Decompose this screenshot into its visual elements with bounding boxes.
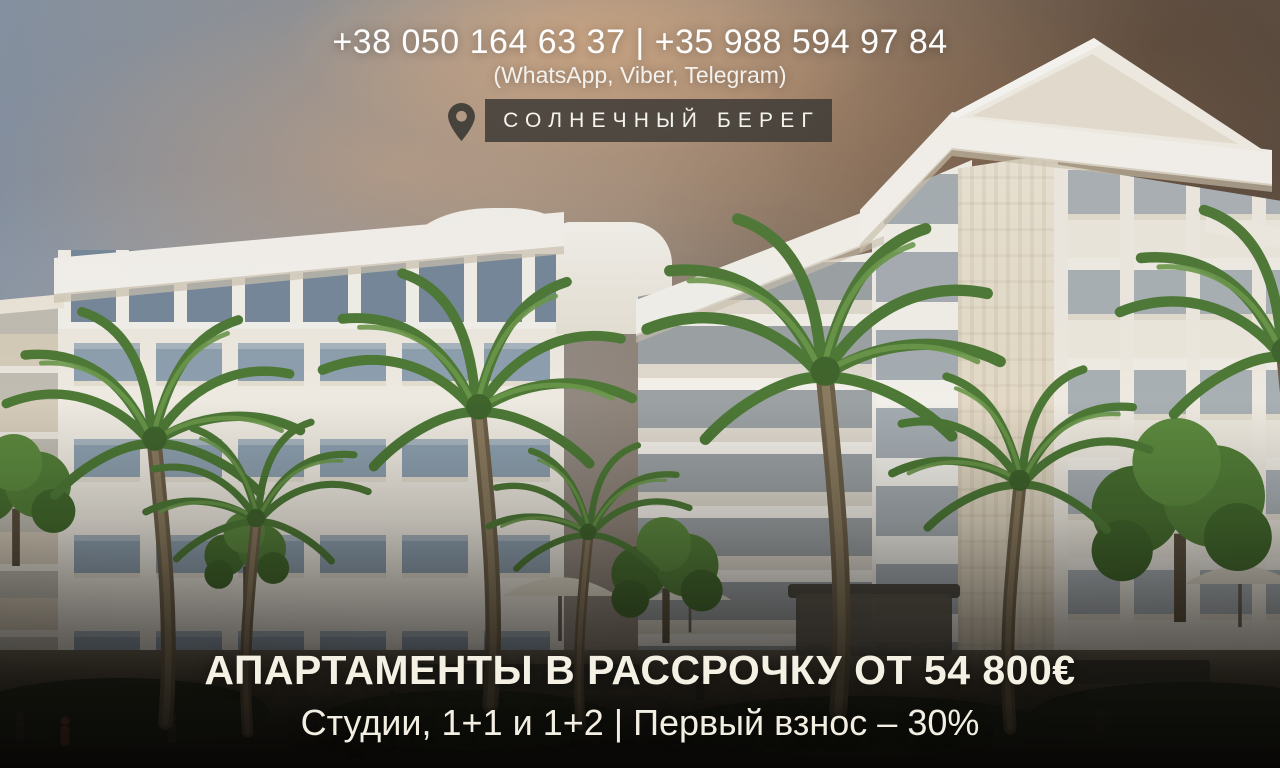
leafy-tree (0, 434, 75, 566)
property-ad-banner: +38 050 164 63 37 | +35 988 594 97 84 (W… (0, 0, 1280, 768)
location-pin-icon (448, 103, 475, 141)
messenger-apps: (WhatsApp, Viber, Telegram) (0, 62, 1280, 89)
offer-block: АПАРТАМЕНТЫ В РАССРОЧКУ ОТ 54 800€ Студи… (0, 646, 1280, 744)
location-badge: СОЛНЕЧНЫЙ БЕРЕГ (485, 99, 832, 142)
contact-header: +38 050 164 63 37 | +35 988 594 97 84 (W… (0, 24, 1280, 89)
location-row: СОЛНЕЧНЫЙ БЕРЕГ (0, 99, 1280, 142)
offer-headline: АПАРТАМЕНТЫ В РАССРОЧКУ ОТ 54 800€ (0, 646, 1280, 695)
phone-numbers: +38 050 164 63 37 | +35 988 594 97 84 (0, 24, 1280, 61)
patio-umbrella (503, 577, 618, 641)
offer-details: Студии, 1+1 и 1+2 | Первый взнос – 30% (0, 701, 1280, 744)
